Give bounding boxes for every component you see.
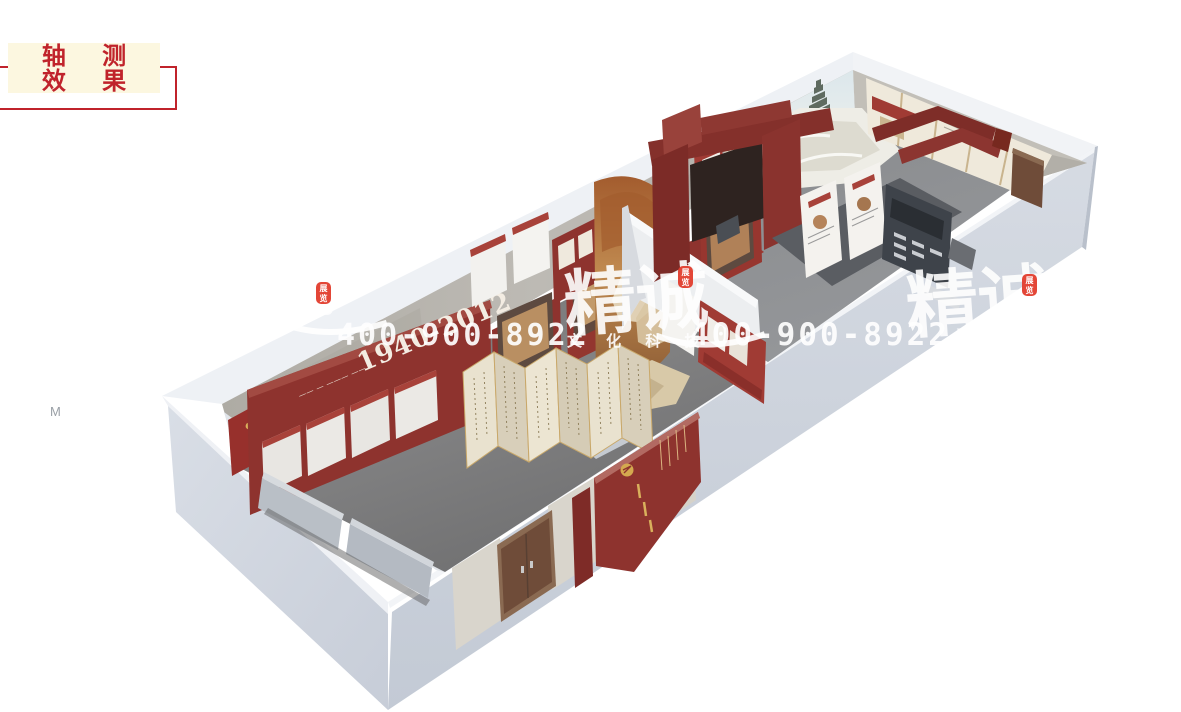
seal-char: 展: [319, 283, 328, 293]
seal-char: 展: [1025, 275, 1034, 285]
red-seal-right: 展 览: [1022, 274, 1037, 296]
exhibition-hall-render: 1940-2012 —— — ——— —— 2014: [0, 0, 1181, 712]
seal-char: 览: [682, 277, 690, 287]
red-seal-center: 展 览: [678, 266, 693, 288]
brand-calligraphy: 精诚: [903, 254, 1053, 349]
screen-panel: [494, 352, 529, 462]
kiosk-panel-photo: [813, 215, 827, 229]
title-badge: 轴 测 效 果: [8, 43, 160, 93]
screen-panel: [556, 348, 591, 458]
door-handle-icon: [521, 566, 524, 573]
seal-char: 览: [320, 293, 328, 303]
axonometric-render-page: 1940-2012 —— — ——— —— 2014: [0, 0, 1181, 712]
entrance-sign-back-panel: [572, 487, 593, 588]
watermark-tagline: 文 化 科 技: [567, 332, 710, 350]
watermark-phone-faint-left: 400-900-8922: [0, 317, 215, 352]
screen-panel: [525, 348, 560, 462]
watermark-phone: 400-900-8922: [337, 318, 590, 353]
title-badge-line1: 轴 测: [28, 43, 140, 68]
kiosk-panel-photo: [857, 197, 871, 211]
seal-char: 览: [1026, 285, 1034, 295]
stray-m-label: M: [50, 404, 61, 419]
door-handle-icon: [530, 561, 533, 568]
watermark-phone-faint-right: 400-900-8922: [1042, 316, 1181, 349]
red-seal-left: 展 览: [316, 282, 331, 304]
brand-calligraphy: 精诚: [191, 242, 336, 335]
screen-panel: [587, 344, 622, 458]
title-badge-line2: 效 果: [28, 68, 140, 93]
screen-panel: [618, 344, 653, 454]
seal-char: 展: [681, 267, 690, 277]
